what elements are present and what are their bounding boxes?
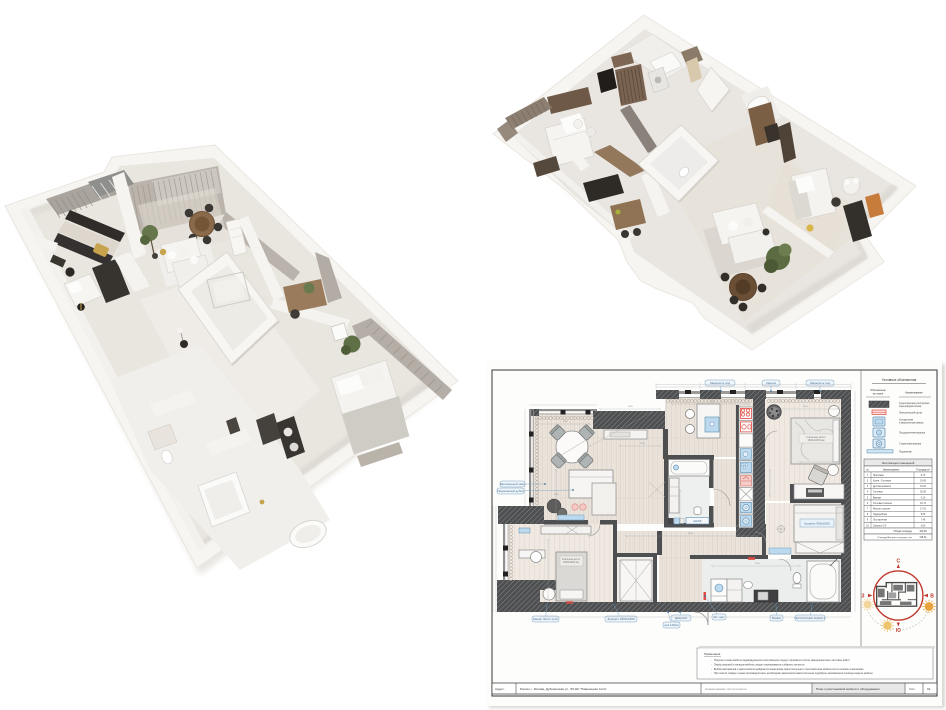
svg-text:Постирочная: Постирочная bbox=[873, 520, 888, 522]
svg-text:Условные обозначения: Условные обозначения bbox=[882, 378, 917, 382]
svg-text:2150: 2150 bbox=[710, 401, 716, 403]
svg-text:№: № bbox=[866, 468, 869, 471]
svg-text:Экспликация помещений: Экспликация помещений bbox=[882, 461, 915, 465]
svg-text:Прихожая: Прихожая bbox=[873, 475, 884, 477]
svg-text:2150: 2150 bbox=[563, 421, 569, 423]
svg-text:Мастер спальня: Мастер спальня bbox=[873, 509, 891, 511]
svg-text:2150: 2150 bbox=[640, 443, 646, 445]
svg-text:З: З bbox=[861, 594, 864, 600]
svg-text:Наименование: Наименование bbox=[905, 392, 923, 395]
svg-text:Ванна: Ванна bbox=[772, 616, 781, 620]
svg-text:на плане: на плане bbox=[873, 392, 884, 395]
svg-text:1800х2000 мм: 1800х2000 мм bbox=[563, 561, 579, 564]
svg-text:109.69: 109.69 bbox=[919, 530, 927, 533]
svg-text:План с расстановкой мебели и о: План с расстановкой мебели и оборудовани… bbox=[816, 687, 880, 691]
svg-text:Адрес:: Адрес: bbox=[495, 687, 505, 691]
svg-text:Стиральная машина: Стиральная машина bbox=[899, 444, 922, 446]
svg-text:- Перед покупкой и заказом м: - Перед покупкой и заказом мебели следуе… bbox=[711, 663, 805, 666]
svg-text:Наименование листа проекта: Наименование листа проекта bbox=[705, 687, 747, 691]
svg-text:3.60: 3.60 bbox=[921, 525, 926, 527]
svg-text:01: 01 bbox=[927, 687, 931, 691]
svg-text:Площадь м²: Площадь м² bbox=[916, 468, 930, 471]
svg-text:Эл. щит: Эл. щит bbox=[714, 615, 726, 619]
svg-text:19.09: 19.09 bbox=[920, 481, 926, 483]
svg-text:- При снятии товара с рынка: - При снятии товара с рынка производител… bbox=[711, 672, 874, 675]
svg-text:В: В bbox=[930, 594, 934, 600]
svg-text:Ю: Ю bbox=[896, 628, 901, 634]
svg-text:Наименование: Наименование bbox=[883, 468, 900, 471]
svg-text:Подоконник: Подоконник bbox=[899, 452, 913, 454]
svg-text:Гостиная: Гостиная bbox=[873, 492, 883, 494]
svg-text:- Выбор материалов и цвета м: - Выбор материалов и цвета мебели выбира… bbox=[711, 668, 864, 671]
svg-text:2150: 2150 bbox=[688, 533, 694, 535]
svg-text:1600х2000 мм: 1600х2000 мм bbox=[807, 438, 824, 442]
svg-text:5.08: 5.08 bbox=[921, 514, 926, 516]
svg-text:Кухня - Гостиная: Кухня - Гостиная bbox=[873, 481, 892, 483]
svg-text:7.46: 7.46 bbox=[921, 520, 926, 522]
svg-text:Холодильник: Холодильник bbox=[899, 420, 914, 422]
svg-text:Зеркало 1800х1800: Зеркало 1800х1800 bbox=[607, 617, 635, 621]
svg-text:Лист: Лист bbox=[909, 687, 916, 691]
svg-text:6.73: 6.73 bbox=[921, 475, 926, 477]
svg-text:Ванная: Ванная bbox=[873, 497, 882, 499]
svg-text:17.61: 17.61 bbox=[920, 509, 926, 511]
svg-text:низ 120см: низ 120см bbox=[664, 623, 678, 627]
svg-text:Гардеробная: Гардеробная bbox=[873, 514, 888, 516]
svg-text:- Покупка и заказ мебели инд: - Покупка и заказ мебели индивидуального… bbox=[711, 659, 850, 662]
svg-text:115.01: 115.01 bbox=[919, 536, 927, 539]
svg-text:Детская комната: Детская комната bbox=[873, 486, 892, 488]
svg-text:4.10: 4.10 bbox=[921, 497, 926, 499]
svg-text:2150: 2150 bbox=[755, 563, 761, 565]
svg-text:Электрический щиток: Электрический щиток bbox=[899, 412, 923, 415]
svg-text:16.74: 16.74 bbox=[920, 503, 926, 505]
svg-text:20.09: 20.09 bbox=[920, 492, 926, 494]
svg-text:Общая площадь: Общая площадь bbox=[894, 530, 913, 533]
svg-text:Гостевая спальня: Гостевая спальня bbox=[873, 503, 893, 505]
svg-text:2150: 2150 bbox=[803, 406, 809, 408]
svg-text:Площадь/Без учёта несущих стен: Площадь/Без учёта несущих стен bbox=[878, 537, 913, 539]
svg-text:Шкаф. Зекто хулп: Шкаф. Зекто хулп bbox=[533, 617, 558, 621]
svg-text:Россия, г. Москва, Дубининская: Россия, г. Москва, Дубининская ул., 59 Ж… bbox=[520, 687, 607, 691]
svg-text:ШКАФ: ШКАФ bbox=[693, 519, 701, 523]
svg-text:Инсталляция зеркал с: Инсталляция зеркал с bbox=[794, 616, 826, 620]
svg-text:Примечания:: Примечания: bbox=[704, 652, 721, 656]
svg-text:Существующие конструкции: Существующие конструкции bbox=[899, 403, 930, 405]
svg-text:и морозильная камера: и морозильная камера bbox=[899, 423, 924, 425]
svg-text:Заложенный умен: Заложенный умен bbox=[500, 482, 526, 486]
svg-text:2150: 2150 bbox=[554, 494, 560, 496]
svg-text:10.02: 10.02 bbox=[920, 486, 926, 488]
svg-text:С: С bbox=[896, 559, 900, 565]
svg-text:(перегородки+блоки): (перегородки+блоки) bbox=[899, 406, 922, 408]
svg-text:Кровать 900х2000: Кровать 900х2000 bbox=[804, 522, 830, 526]
svg-text:Посудомоечная машина: Посудомоечная машина bbox=[899, 433, 926, 435]
svg-text:Подоконный дубль: Подоконный дубль bbox=[497, 489, 524, 493]
svg-text:2150: 2150 bbox=[628, 406, 634, 408]
svg-text:Дверной: Дверной bbox=[675, 616, 687, 620]
svg-text:Санузел С/У: Санузел С/У bbox=[873, 525, 887, 527]
